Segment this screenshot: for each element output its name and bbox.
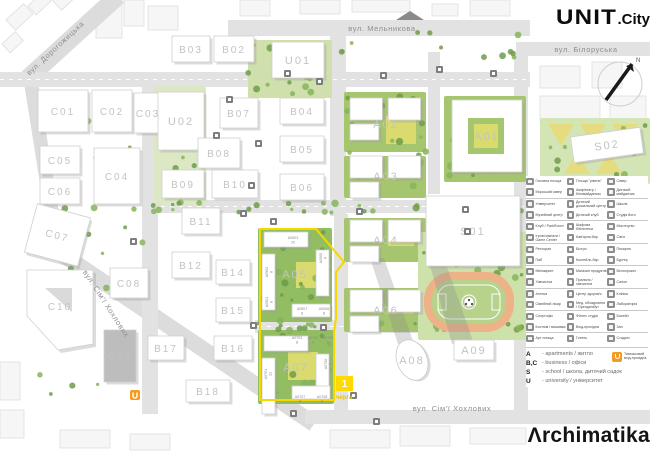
street-label: вул. Білоруська	[554, 45, 617, 54]
map-amenity-icon	[462, 206, 469, 213]
atelier-icon	[526, 323, 534, 331]
context-building	[352, 0, 410, 12]
svg-text:8: 8	[323, 311, 325, 315]
context-building	[124, 0, 144, 26]
legend-row: ПабКоктейль-барБургер	[526, 255, 648, 266]
tree	[103, 285, 110, 292]
tree	[171, 203, 175, 207]
fitness-icon	[567, 313, 575, 321]
tree	[280, 293, 284, 297]
map-amenity-icon	[250, 322, 257, 329]
street-label: вул. Сім'ї Хохлових	[413, 404, 492, 413]
legend-item-label: Вхід-прохідна	[576, 325, 599, 329]
unit-logo-text: UNIT	[557, 6, 618, 30]
building-label: A08	[399, 355, 425, 367]
context-building	[240, 0, 270, 16]
pool-icon	[607, 313, 615, 321]
tree	[131, 206, 136, 211]
legend-item: Сімейний лікар	[526, 301, 567, 309]
tree	[309, 322, 315, 328]
legend-item: Зал	[607, 323, 648, 331]
svg-text:A0705: A0705	[323, 336, 333, 340]
map-amenity-icon	[284, 70, 291, 77]
svg-text:A0703: A0703	[292, 336, 302, 340]
building-label: A04	[373, 235, 399, 247]
legend-item-label: Спортофіс	[536, 314, 554, 318]
legend-item: Магазин продуктів	[567, 268, 608, 276]
salon-icon	[607, 278, 615, 286]
university-icon	[526, 200, 534, 208]
legend-item-label: Сквер	[617, 179, 627, 183]
building-label: B07	[227, 109, 251, 120]
legend-item-label: Площа "рівень"	[576, 179, 602, 183]
terrace-icon	[567, 178, 575, 186]
legend-item-label: Морський сквер	[536, 190, 563, 194]
archimatika-logo: Λrchimatika	[498, 424, 650, 448]
entrance-icon	[567, 323, 575, 331]
tree	[549, 146, 553, 150]
tree	[419, 135, 422, 138]
tree	[123, 225, 127, 229]
legend-item: Центр здоров'я	[567, 290, 608, 298]
tree	[345, 96, 350, 101]
tree	[370, 208, 376, 214]
legend-item: Дитячий клуб	[567, 211, 608, 219]
legend-item-label: Школа	[617, 202, 628, 206]
cocktail-bar-icon	[567, 256, 575, 264]
legend-item-label: Мінімаркет	[536, 269, 554, 273]
legend-item: Спортофіс	[526, 313, 567, 321]
legend-item-label: Амфітеатр / Кіномайданчик	[576, 188, 607, 196]
tree	[339, 49, 345, 55]
legend-item: Університет	[526, 200, 567, 208]
legend-item: Мед. обладнання / Оренда/збут	[567, 301, 608, 309]
legend-item: Салон	[607, 278, 648, 286]
tree	[171, 208, 174, 211]
legend-row: Арт площаГотельСтадіон	[526, 332, 648, 344]
tree	[344, 108, 350, 114]
building-label: C01	[51, 107, 75, 118]
legend-item-label: Клініка	[617, 292, 628, 296]
legend-item-label: Дитячий клуб	[576, 213, 599, 217]
tree	[350, 41, 354, 45]
tree	[499, 52, 506, 59]
legend-item: Мистецтво	[607, 223, 648, 231]
legend-row: Головна площаПлоща "рівень"Сквер	[526, 176, 648, 187]
legend-item: Площа "рівень"	[567, 178, 608, 186]
building-label: B03	[179, 45, 203, 56]
legend-item: Коктейль-бар	[567, 256, 608, 264]
road	[330, 34, 346, 216]
bistro-icon	[567, 246, 575, 254]
legend-row: РесторанБістроПекарня	[526, 243, 648, 255]
tree	[510, 51, 516, 57]
art-square-icon	[526, 335, 534, 343]
legend-item-label: Велопрокат	[617, 269, 637, 273]
map-amenity-icon	[270, 218, 277, 225]
building-label: A09	[461, 345, 487, 357]
legend-row: АптекаЦентр здоров'яКлініка	[526, 288, 648, 300]
legend-building-types: A- apartments / житлоB,C- business / офі…	[526, 347, 648, 386]
context-building	[60, 430, 110, 448]
school-icon	[607, 200, 615, 208]
legend-item-label: Фітнес студія	[576, 314, 598, 318]
building-label: B15	[221, 306, 245, 317]
map-amenity-icon	[130, 238, 137, 245]
legend-item: Бургер	[607, 256, 648, 264]
building-label: A06	[373, 305, 399, 317]
street-label: вул. Мельникова	[348, 24, 416, 33]
legend-item-label: Коктейль-бар	[576, 258, 598, 262]
legend-item: Музейний центр	[526, 211, 567, 219]
legend-item: Басейн	[607, 313, 648, 321]
legend-item-label: Бістро	[576, 247, 587, 251]
legend-item-label: Студія йоги	[617, 213, 636, 217]
tree	[563, 145, 567, 149]
building-label: B16	[221, 344, 245, 355]
tree	[181, 156, 185, 160]
tree	[287, 80, 291, 84]
building-label: B06	[290, 183, 314, 194]
building-type-key: U	[526, 378, 542, 385]
museum-icon	[526, 211, 534, 219]
legend-row: Костюм / вишивкаВхід-прохіднаЗал	[526, 322, 648, 333]
bakery-icon	[607, 246, 615, 254]
context-building	[470, 0, 510, 16]
legend-item: Ігрові кімнати / Game Center	[526, 234, 567, 242]
legend-item: Клініка	[607, 290, 648, 298]
legend-item: Сім'я	[607, 234, 648, 242]
building-label: A03	[373, 171, 399, 183]
waterfront-icon	[526, 188, 534, 196]
building-label: C05	[48, 156, 72, 167]
tree	[151, 203, 156, 208]
tree	[176, 201, 181, 206]
tree	[446, 172, 453, 179]
context-building	[300, 0, 340, 14]
svg-text:8: 8	[312, 340, 314, 344]
road	[428, 52, 440, 194]
context-building	[52, 0, 81, 10]
map-amenity-icon	[356, 208, 363, 215]
map-amenity-icon	[248, 182, 255, 189]
context-building	[540, 66, 580, 88]
clinic-icon	[607, 290, 615, 298]
tree	[512, 274, 519, 281]
svg-text:8: 8	[323, 257, 327, 259]
hall-icon	[607, 323, 615, 331]
legend-item-label: Зал	[617, 325, 623, 329]
legend-item-label: Центр здоров'я	[576, 292, 602, 296]
svg-text:8: 8	[296, 340, 298, 344]
building-label: C04	[105, 172, 129, 183]
tree	[277, 317, 284, 324]
transit-stop-legend-item: Тимчасовий вхід-прохідна	[612, 352, 648, 362]
tree	[439, 45, 443, 49]
legend-item-label: Клуб / ParkRoom	[536, 224, 564, 228]
street-label: вул. Дорогожицька	[25, 19, 87, 77]
med-equipment-icon	[567, 301, 575, 309]
building-label: B12	[179, 261, 203, 272]
context-building	[432, 4, 458, 16]
legend-row: Клуб / ParkRoomШафова бібліотекаМистецтв…	[526, 220, 648, 232]
context-building	[330, 430, 390, 448]
legend-item: Амфітеатр / Кіномайданчик	[567, 188, 608, 196]
tree	[192, 163, 197, 168]
context-building	[148, 6, 178, 30]
legend-item-label: Головна площа	[536, 179, 562, 183]
legend-item-label: Бургер	[617, 258, 628, 262]
building-label: A07	[283, 362, 309, 374]
legend-item: Арт площа	[526, 335, 567, 343]
tree	[245, 70, 251, 76]
legend-item: Шафова бібліотека	[567, 223, 608, 231]
svg-text:A0506: A0506	[319, 307, 329, 311]
tree	[520, 273, 523, 276]
dry-cleaning-icon	[526, 278, 534, 286]
tree	[308, 294, 314, 300]
tree	[302, 83, 309, 90]
tree	[37, 372, 42, 377]
legend-item: Паб	[526, 256, 567, 264]
legend-item: Сквер	[607, 178, 648, 186]
club-icon	[526, 223, 534, 231]
burger-icon	[607, 256, 615, 264]
legend-item-label: Сім'я	[617, 235, 626, 239]
masterplan-page: C01C02C03C05C06C04C07C08C09C10B03B02U01U…	[0, 0, 650, 459]
tree	[101, 252, 105, 256]
tree	[155, 206, 162, 213]
map-amenity-icon	[316, 78, 323, 85]
tree	[516, 325, 523, 332]
legend-item-label: Університет	[536, 202, 556, 206]
pharmacy-icon	[526, 290, 534, 298]
legend-item: Кав'ярня-бар	[567, 234, 608, 242]
legend-item: Готель	[567, 335, 608, 343]
tree	[410, 182, 417, 189]
legend-item-label: Салон	[617, 280, 628, 284]
legend-item: Костюм / вишивка	[526, 323, 567, 331]
transit-stop-label: Тимчасовий вхід-прохідна	[624, 352, 646, 360]
map-amenity-icon	[255, 140, 262, 147]
building-label: B14	[221, 268, 245, 279]
svg-text:A0503: A0503	[288, 236, 298, 240]
minimarket-icon	[526, 268, 534, 276]
tree	[331, 200, 339, 208]
building-label: U02	[168, 116, 194, 128]
svg-text:8: 8	[269, 271, 273, 273]
tree	[396, 138, 403, 145]
amphitheatre-icon	[567, 188, 575, 196]
tree	[422, 251, 426, 255]
transit-stop-map-icon	[130, 390, 140, 400]
unit-city-suffix: .City	[617, 11, 650, 28]
svg-text:20: 20	[291, 240, 295, 244]
legend-panel: Головна площаПлоща "рівень"СкверМорський…	[526, 176, 648, 387]
legend-row: Морський скверАмфітеатр / КіномайданчикД…	[526, 187, 648, 198]
game-center-icon	[526, 234, 534, 242]
library-icon	[567, 223, 575, 231]
legend-item: Головна площа	[526, 178, 567, 186]
legend-item: Студія йоги	[607, 211, 648, 219]
svg-text:A0507: A0507	[297, 307, 307, 311]
yoga-icon	[607, 211, 615, 219]
tree	[286, 327, 293, 334]
context-building	[130, 434, 170, 450]
grocery-icon	[567, 268, 575, 276]
legend-item-label: Мед. обладнання / Оренда/збут	[576, 301, 607, 309]
svg-text:A0505: A0505	[319, 253, 323, 263]
building-label: C10	[48, 302, 72, 313]
coffee-bar-icon	[567, 234, 575, 242]
tree	[253, 86, 260, 93]
building-label: B02	[222, 45, 246, 56]
legend-item-label: Готель	[576, 336, 587, 340]
tree	[49, 392, 53, 396]
tree	[643, 123, 648, 128]
svg-text:8: 8	[301, 311, 303, 315]
building-type-label: - apartments / житло	[542, 351, 593, 358]
legend-item: Стадіон	[607, 335, 648, 343]
svg-text:22: 22	[268, 372, 272, 376]
tree	[299, 282, 303, 286]
legend-row: Музейний центрДитячий клубСтудія йоги	[526, 210, 648, 221]
svg-text:A0701: A0701	[264, 369, 268, 379]
tree	[196, 200, 202, 206]
legend-item-label: Басейн	[617, 314, 629, 318]
building-label: C03	[136, 109, 160, 120]
tree	[96, 383, 99, 386]
building-label: B08	[207, 149, 231, 160]
building-label: B09	[171, 180, 195, 191]
tree	[515, 32, 522, 39]
building-label: U01	[285, 55, 311, 67]
family-icon	[607, 234, 615, 242]
legend-item-label: Пекарня	[617, 247, 631, 251]
legend-item: Ресторан	[526, 246, 567, 254]
legend-item: Школа	[607, 200, 648, 208]
legend-item-label: Ресторан	[536, 247, 552, 251]
tree	[266, 83, 270, 87]
tree	[554, 166, 560, 172]
building-type-key: A	[526, 351, 542, 358]
sport-office-icon	[526, 313, 534, 321]
legend-item-label: Дитячий майданчик	[617, 188, 648, 196]
tree	[139, 239, 145, 245]
legend-item-label: Сімейний лікар	[536, 302, 561, 306]
legend-item: Пекарня	[607, 246, 648, 254]
tree	[427, 30, 432, 35]
map-amenity-icon	[240, 210, 247, 217]
map-amenity-icon	[320, 324, 327, 331]
legend-item-label: Пральня / хімчистка	[576, 278, 607, 286]
svg-text:черга: черга	[336, 395, 353, 401]
building-type-key: B,C	[526, 360, 542, 367]
building-type-key: S	[526, 369, 542, 376]
map-amenity-icon	[464, 228, 471, 235]
legend-item: Мінімаркет	[526, 268, 567, 276]
hotel-icon	[567, 335, 575, 343]
legend-row: Сімейний лікарМед. обладнання / Оренда/з…	[526, 299, 648, 310]
building-label: B04	[290, 107, 314, 118]
tree	[290, 208, 293, 211]
legend-row: ХімчисткаПральня / хімчисткаСалон	[526, 277, 648, 288]
tree	[422, 148, 428, 154]
legend-item-label: Ігрові кімнати / Game Center	[536, 234, 567, 242]
legend-item-label: Мистецтво	[617, 224, 635, 228]
plaza-icon	[526, 178, 534, 186]
compass-north-label: N	[636, 58, 640, 64]
art-icon	[607, 223, 615, 231]
building-label: B05	[290, 145, 314, 156]
restaurant-icon	[526, 246, 534, 254]
tree	[347, 150, 352, 155]
playground-icon	[607, 188, 615, 196]
legend-item-label: Шафова бібліотека	[576, 223, 607, 231]
svg-text:8: 8	[327, 340, 329, 344]
building-type-label: - university / університет	[542, 378, 603, 385]
building-label: B11	[189, 217, 212, 228]
context-building	[2, 32, 23, 53]
building-label: C06	[48, 187, 72, 198]
tree	[554, 157, 561, 164]
svg-text:A0704: A0704	[308, 336, 318, 340]
park-icon	[607, 178, 615, 186]
tree	[297, 325, 303, 331]
tree	[246, 207, 251, 212]
building-label: C02	[100, 107, 124, 118]
legend-item-label: Кав'ярня-бар	[576, 235, 598, 239]
legend-row: СпортофісФітнес студіяБасейн	[526, 310, 648, 322]
context-building	[0, 362, 20, 400]
map-amenity-icon	[380, 72, 387, 79]
svg-text:A0706: A0706	[324, 359, 328, 369]
tree	[307, 89, 314, 96]
map-amenity-icon	[490, 70, 497, 77]
building-type-label: - business / офіси	[542, 360, 586, 367]
svg-text:8: 8	[299, 399, 301, 403]
legend-row: МінімаркетМагазин продуктівВелопрокат	[526, 265, 648, 277]
legend-item: Хімчистка	[526, 278, 567, 286]
context-building	[0, 410, 24, 438]
tree	[357, 204, 361, 208]
legend-item: Клуб / ParkRoom	[526, 223, 567, 231]
phase1-badge: 1черга	[336, 376, 353, 401]
legend-item: Аптека	[526, 290, 567, 298]
kindergarten-icon	[567, 200, 575, 208]
tree	[321, 230, 326, 235]
tree	[302, 209, 307, 214]
building-label: B18	[196, 387, 220, 398]
svg-text:8: 8	[269, 301, 273, 303]
legend-item: Дитячий дошкільний центр	[567, 200, 608, 208]
svg-text:A0708: A0708	[317, 395, 327, 399]
family-doctor-icon	[526, 301, 534, 309]
map-amenity-icon	[373, 418, 380, 425]
building-type-row: U- university / університет	[526, 378, 648, 385]
legend-item: Дитячий майданчик	[607, 188, 648, 196]
svg-text:7: 7	[328, 363, 332, 365]
tree	[481, 54, 487, 60]
legend-item-label: Хімчистка	[536, 280, 553, 284]
map-amenity-icon	[226, 96, 233, 103]
building-label: C09	[108, 352, 132, 363]
svg-text:8: 8	[321, 399, 323, 403]
legend-row: УніверситетДитячий дошкільний центрШкола	[526, 198, 648, 210]
unit-city-logo: UNIT.City	[517, 6, 650, 30]
tree	[412, 204, 419, 211]
svg-text:A0502: A0502	[265, 267, 269, 277]
